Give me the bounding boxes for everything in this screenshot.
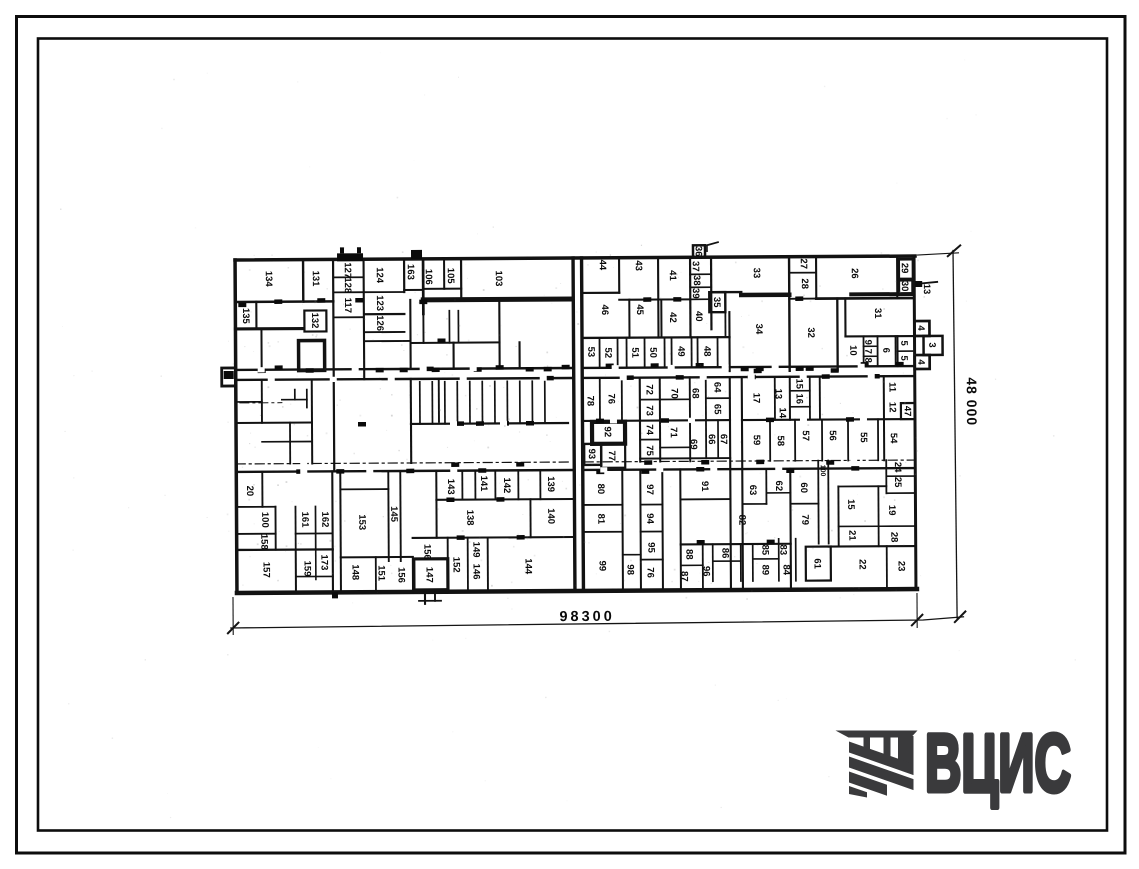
svg-text:43: 43	[633, 260, 644, 271]
svg-text:123: 123	[374, 295, 385, 311]
svg-text:153: 153	[356, 514, 367, 530]
svg-text:97: 97	[644, 484, 655, 495]
svg-text:76: 76	[645, 567, 656, 578]
svg-text:21: 21	[846, 530, 857, 541]
svg-text:140: 140	[545, 508, 556, 524]
svg-text:73: 73	[644, 405, 655, 416]
svg-text:144: 144	[522, 558, 533, 575]
svg-text:100: 100	[819, 465, 826, 477]
svg-text:40: 40	[693, 311, 704, 322]
svg-text:25: 25	[892, 477, 903, 488]
svg-text:63: 63	[747, 485, 758, 496]
svg-text:139: 139	[545, 476, 556, 492]
svg-text:57: 57	[800, 430, 811, 441]
svg-text:9: 9	[862, 340, 873, 345]
svg-text:55: 55	[858, 432, 869, 443]
svg-text:69: 69	[688, 439, 699, 450]
svg-text:41: 41	[667, 270, 678, 281]
svg-text:95: 95	[645, 542, 656, 553]
svg-text:14: 14	[777, 407, 788, 418]
svg-text:91: 91	[699, 481, 710, 492]
svg-text:8: 8	[862, 358, 873, 363]
svg-text:12: 12	[887, 402, 898, 413]
svg-text:162: 162	[319, 511, 330, 527]
svg-text:26: 26	[849, 268, 860, 279]
svg-text:148: 148	[349, 564, 360, 580]
svg-text:42: 42	[667, 312, 678, 323]
svg-text:98: 98	[624, 564, 635, 575]
svg-text:131: 131	[310, 271, 321, 288]
svg-text:51: 51	[629, 347, 640, 358]
svg-text:173: 173	[318, 554, 329, 570]
svg-text:3: 3	[926, 342, 937, 347]
svg-text:87: 87	[679, 571, 690, 582]
svg-text:13: 13	[921, 284, 932, 295]
svg-text:4: 4	[915, 325, 926, 331]
svg-text:34: 34	[753, 324, 764, 335]
svg-text:30: 30	[899, 281, 910, 292]
svg-text:149: 149	[470, 542, 481, 558]
svg-text:5: 5	[898, 355, 909, 361]
svg-text:143: 143	[445, 479, 456, 495]
svg-text:10: 10	[847, 345, 858, 356]
svg-text:4: 4	[915, 359, 926, 365]
svg-text:127: 127	[342, 262, 353, 278]
svg-text:161: 161	[299, 512, 310, 529]
svg-text:151: 151	[375, 565, 386, 582]
svg-text:48: 48	[701, 346, 712, 357]
svg-text:103: 103	[493, 270, 504, 286]
svg-text:36: 36	[693, 246, 704, 257]
svg-text:64: 64	[711, 382, 722, 393]
svg-text:33: 33	[751, 268, 762, 279]
svg-text:106: 106	[423, 269, 434, 285]
svg-text:105: 105	[445, 268, 456, 285]
svg-text:79: 79	[799, 514, 810, 525]
svg-text:38: 38	[691, 275, 702, 286]
svg-text:145: 145	[388, 506, 399, 523]
svg-text:94: 94	[644, 513, 655, 524]
svg-text:66: 66	[706, 434, 717, 445]
svg-text:138: 138	[464, 510, 475, 526]
svg-text:47: 47	[902, 406, 913, 417]
svg-text:80: 80	[595, 484, 606, 495]
svg-text:7: 7	[862, 349, 873, 354]
svg-text:126: 126	[374, 315, 385, 331]
svg-text:28: 28	[799, 278, 810, 289]
svg-text:124: 124	[374, 267, 385, 284]
svg-text:163: 163	[405, 264, 416, 280]
svg-text:157: 157	[260, 562, 271, 578]
svg-text:44: 44	[597, 260, 608, 271]
svg-text:16: 16	[794, 393, 805, 404]
svg-text:32: 32	[805, 327, 816, 338]
svg-text:68: 68	[689, 388, 700, 399]
svg-text:141: 141	[478, 476, 489, 493]
svg-text:70: 70	[668, 388, 679, 399]
svg-text:77: 77	[606, 450, 617, 461]
svg-text:147: 147	[423, 567, 434, 583]
svg-text:ВЦИС: ВЦИС	[925, 718, 1071, 809]
svg-text:88: 88	[683, 549, 694, 560]
svg-text:128: 128	[342, 277, 353, 293]
svg-text:142: 142	[501, 477, 512, 493]
svg-text:84: 84	[780, 564, 791, 575]
svg-text:152: 152	[450, 557, 461, 573]
svg-text:76: 76	[606, 393, 617, 404]
svg-text:29: 29	[899, 263, 910, 274]
svg-text:135: 135	[240, 308, 251, 325]
svg-text:56: 56	[827, 430, 838, 441]
svg-text:62: 62	[773, 481, 784, 492]
svg-text:78: 78	[585, 396, 596, 407]
svg-text:82: 82	[736, 515, 747, 526]
svg-text:53: 53	[585, 347, 596, 358]
svg-text:59: 59	[751, 435, 762, 446]
svg-text:11: 11	[886, 382, 897, 393]
svg-text:15: 15	[845, 499, 856, 510]
svg-text:132: 132	[309, 313, 320, 329]
svg-text:159: 159	[301, 561, 312, 577]
svg-text:99: 99	[596, 561, 607, 572]
svg-text:158: 158	[258, 534, 269, 550]
svg-text:86: 86	[719, 548, 730, 559]
svg-text:31: 31	[872, 308, 883, 319]
svg-text:98300: 98300	[559, 609, 614, 625]
svg-text:20: 20	[244, 486, 255, 497]
svg-text:48 000: 48 000	[964, 377, 980, 426]
svg-text:39: 39	[690, 288, 701, 299]
svg-text:71: 71	[668, 427, 679, 438]
svg-text:74: 74	[644, 424, 655, 435]
svg-text:75: 75	[644, 445, 655, 456]
svg-text:81: 81	[595, 514, 606, 525]
svg-text:146: 146	[470, 564, 481, 580]
svg-text:17: 17	[750, 393, 761, 404]
svg-text:89: 89	[759, 565, 770, 576]
svg-text:35: 35	[711, 297, 722, 308]
svg-text:65: 65	[712, 404, 723, 415]
svg-text:5: 5	[898, 340, 909, 346]
svg-text:92: 92	[602, 426, 613, 437]
svg-text:23: 23	[895, 561, 906, 572]
svg-text:83: 83	[777, 544, 788, 555]
svg-text:72: 72	[643, 384, 654, 395]
svg-text:61: 61	[811, 558, 822, 569]
svg-text:85: 85	[759, 545, 770, 556]
svg-text:67: 67	[718, 434, 729, 445]
svg-text:19: 19	[886, 505, 897, 516]
svg-text:58: 58	[775, 435, 786, 446]
svg-text:96: 96	[700, 566, 711, 577]
svg-text:156: 156	[421, 544, 432, 560]
svg-text:27: 27	[798, 258, 809, 269]
svg-text:54: 54	[888, 433, 899, 444]
svg-text:22: 22	[856, 559, 867, 570]
svg-text:49: 49	[675, 346, 686, 357]
svg-text:13: 13	[772, 389, 783, 400]
svg-text:45: 45	[634, 304, 645, 315]
svg-text:50: 50	[647, 347, 658, 358]
svg-text:60: 60	[798, 482, 809, 493]
svg-text:28: 28	[888, 532, 899, 543]
svg-text:6: 6	[880, 348, 891, 353]
svg-text:93: 93	[586, 449, 597, 460]
svg-text:52: 52	[602, 347, 613, 358]
svg-text:100: 100	[259, 512, 270, 528]
svg-text:46: 46	[599, 305, 610, 316]
svg-text:117: 117	[342, 298, 353, 313]
svg-text:134: 134	[263, 271, 274, 288]
svg-text:156: 156	[395, 567, 406, 583]
svg-text:37: 37	[690, 261, 701, 272]
svg-text:24: 24	[892, 462, 903, 473]
svg-text:15: 15	[793, 378, 804, 389]
